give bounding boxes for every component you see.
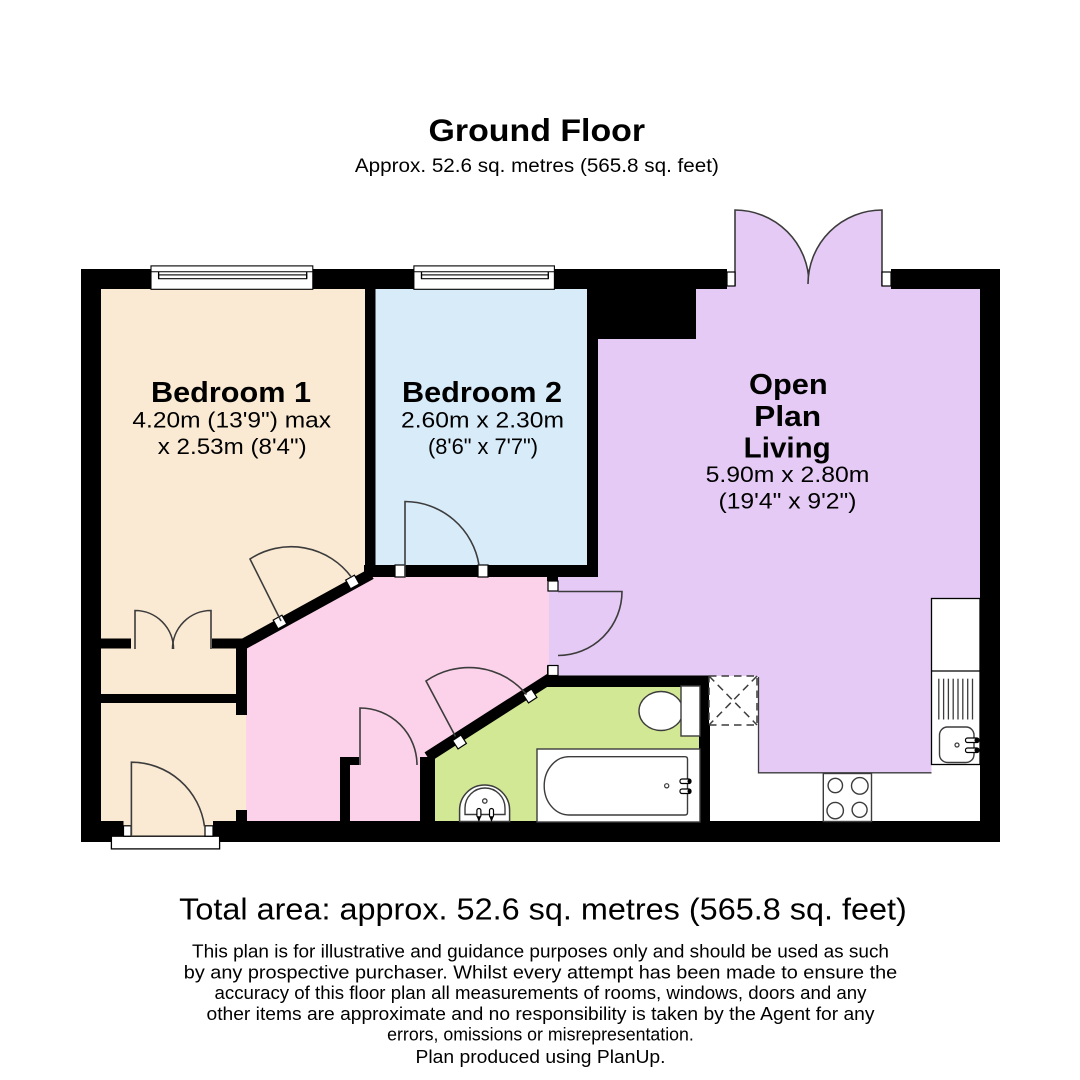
- svg-text:(8'6" x 7'7"): (8'6" x 7'7"): [428, 434, 538, 459]
- svg-text:(19'4" x 9'2"): (19'4" x 9'2"): [719, 489, 857, 514]
- svg-text:4.20m (13'9") max: 4.20m (13'9") max: [132, 408, 331, 433]
- svg-text:errors, omissions or misrepres: errors, omissions or misrepresentation.: [387, 1024, 694, 1045]
- svg-text:by any prospective purchaser.: by any prospective purchaser. Whilst eve…: [184, 961, 897, 982]
- svg-text:Ground Floor: Ground Floor: [429, 112, 646, 148]
- svg-text:x 2.53m (8'4"): x 2.53m (8'4"): [158, 434, 307, 459]
- svg-text:5.90m x 2.80m: 5.90m x 2.80m: [706, 462, 870, 487]
- svg-text:Bedroom 2: Bedroom 2: [402, 377, 562, 409]
- svg-text:Bedroom 1: Bedroom 1: [151, 377, 311, 409]
- svg-text:Plan produced using PlanUp.: Plan produced using PlanUp.: [416, 1046, 666, 1067]
- svg-text:Living: Living: [744, 433, 831, 465]
- svg-text:This plan is for illustrative: This plan is for illustrative and guidan…: [192, 941, 889, 962]
- svg-text:Plan: Plan: [754, 401, 821, 433]
- svg-text:Total area: approx. 52.6 sq. m: Total area: approx. 52.6 sq. metres (565…: [179, 893, 907, 927]
- svg-text:2.60m x 2.30m: 2.60m x 2.30m: [401, 408, 564, 433]
- svg-text:Open: Open: [749, 369, 828, 401]
- svg-text:accuracy of this floor plan al: accuracy of this floor plan all measurem…: [215, 982, 868, 1003]
- svg-text:other items are approximate an: other items are approximate and no respo…: [207, 1003, 876, 1024]
- svg-text:Approx. 52.6 sq. metres (565.8: Approx. 52.6 sq. metres (565.8 sq. feet): [355, 155, 719, 177]
